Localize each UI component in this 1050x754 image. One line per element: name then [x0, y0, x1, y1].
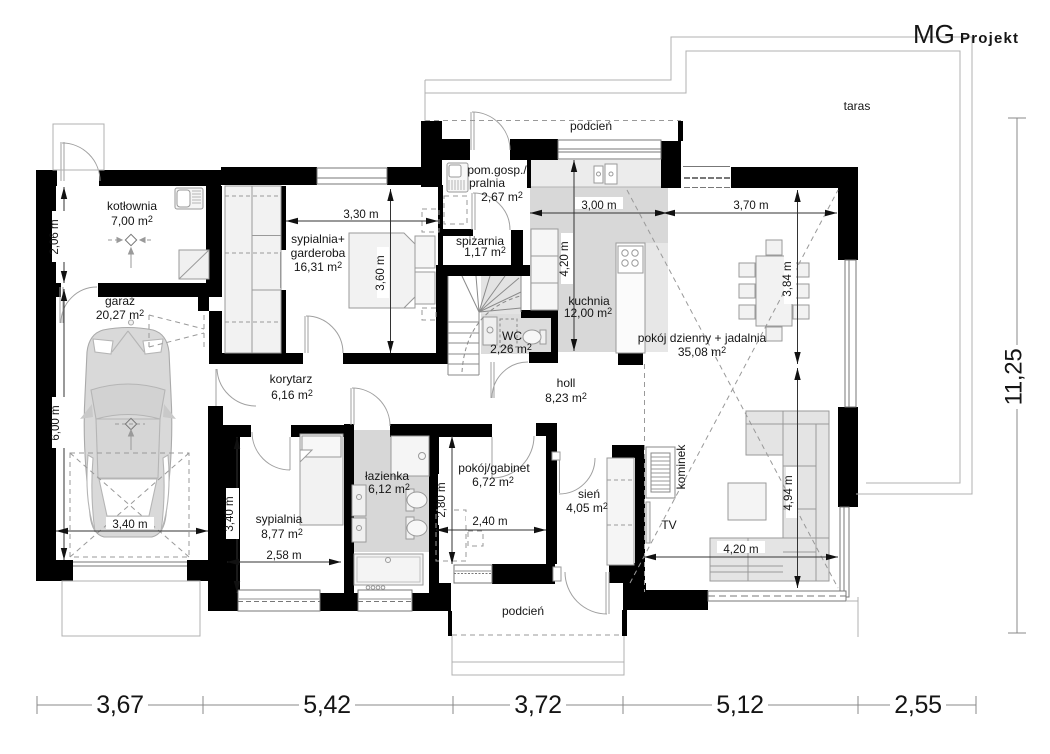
svg-text:3,40 m: 3,40 m — [112, 519, 147, 531]
svg-text:35,08 m2: 35,08 m2 — [678, 345, 726, 359]
svg-text:4,05 m2: 4,05 m2 — [566, 501, 608, 515]
svg-text:4,20 m: 4,20 m — [723, 544, 758, 556]
svg-text:6,72 m2: 6,72 m2 — [472, 475, 514, 489]
svg-text:sypialnia: sypialnia — [256, 512, 303, 526]
svg-text:korytarz: korytarz — [270, 372, 313, 386]
svg-text:2,67 m2: 2,67 m2 — [481, 190, 523, 204]
svg-text:6,12 m2: 6,12 m2 — [368, 482, 410, 496]
svg-text:MG: MG — [913, 19, 955, 49]
svg-text:łazienka: łazienka — [365, 469, 409, 483]
svg-text:garderoba: garderoba — [291, 246, 346, 260]
svg-text:1,17 m2: 1,17 m2 — [464, 245, 506, 259]
svg-text:pralnia: pralnia — [469, 176, 505, 190]
svg-text:6,00 m: 6,00 m — [50, 405, 62, 440]
svg-text:taras: taras — [844, 99, 871, 113]
svg-text:sień: sień — [578, 487, 600, 501]
svg-text:3,40 m: 3,40 m — [224, 496, 236, 531]
svg-text:3,00 m: 3,00 m — [581, 200, 616, 212]
svg-text:holl: holl — [557, 376, 576, 390]
svg-text:5,12: 5,12 — [716, 691, 763, 719]
svg-text:4,94 m: 4,94 m — [783, 475, 795, 510]
svg-text:3,84 m: 3,84 m — [782, 261, 794, 296]
svg-text:garaż: garaż — [105, 294, 135, 308]
svg-text:2,55: 2,55 — [894, 691, 941, 719]
svg-text:3,67: 3,67 — [96, 691, 143, 719]
svg-text:pokój dzienny + jadalnia: pokój dzienny + jadalnia — [638, 331, 767, 345]
svg-text:podcień: podcień — [502, 604, 544, 618]
svg-text:sypialnia+: sypialnia+ — [291, 232, 345, 246]
svg-text:kominek: kominek — [674, 444, 688, 490]
svg-text:TV: TV — [661, 518, 676, 532]
svg-text:20,27 m2: 20,27 m2 — [96, 308, 144, 322]
svg-text:3,30 m: 3,30 m — [343, 209, 378, 221]
svg-text:5,42: 5,42 — [303, 691, 350, 719]
svg-text:4,20 m: 4,20 m — [559, 241, 571, 276]
svg-text:pom.gosp./: pom.gosp./ — [467, 163, 527, 177]
svg-text:11,25: 11,25 — [1001, 349, 1028, 406]
svg-text:3,70 m: 3,70 m — [733, 200, 768, 212]
svg-text:2,58 m: 2,58 m — [266, 550, 301, 562]
svg-text:16,31 m2: 16,31 m2 — [294, 260, 342, 274]
svg-text:2,26 m2: 2,26 m2 — [490, 342, 532, 356]
svg-text:2,80 m: 2,80 m — [436, 482, 448, 517]
svg-text:Projekt: Projekt — [960, 30, 1019, 47]
svg-text:8,23 m2: 8,23 m2 — [545, 391, 587, 405]
svg-text:podcień: podcień — [570, 119, 612, 133]
svg-text:WC: WC — [502, 329, 522, 343]
svg-text:8,77 m2: 8,77 m2 — [261, 527, 303, 541]
svg-text:3,72: 3,72 — [514, 691, 561, 719]
svg-text:7,00 m2: 7,00 m2 — [111, 214, 153, 228]
svg-text:2,40 m: 2,40 m — [472, 516, 507, 528]
svg-text:3,60 m: 3,60 m — [375, 255, 387, 290]
svg-text:kotłownia: kotłownia — [107, 199, 157, 213]
svg-text:6,16 m2: 6,16 m2 — [271, 388, 313, 402]
svg-text:12,00 m2: 12,00 m2 — [564, 306, 612, 320]
svg-text:2,06 m: 2,06 m — [49, 219, 61, 254]
svg-text:pokój/gabinet: pokój/gabinet — [458, 461, 530, 475]
